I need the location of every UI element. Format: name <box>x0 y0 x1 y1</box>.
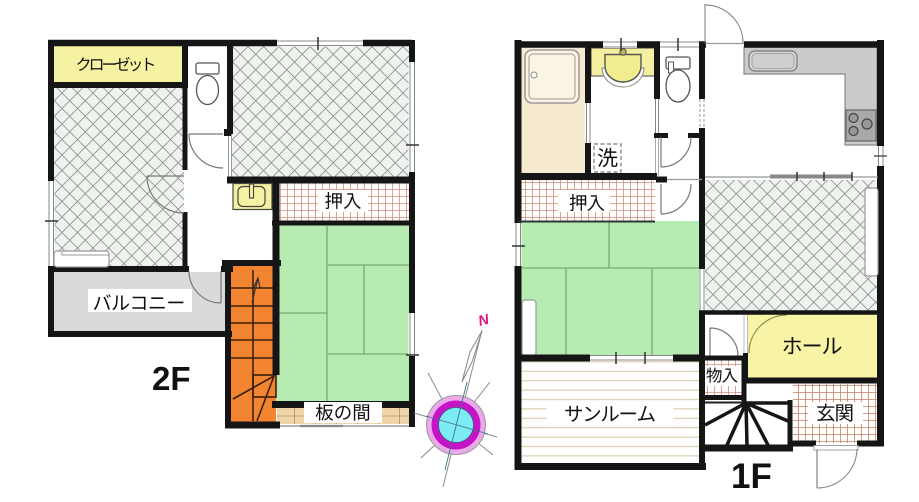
svg-text:1F: 1F <box>731 457 772 496</box>
svg-text:2F: 2F <box>152 360 191 397</box>
